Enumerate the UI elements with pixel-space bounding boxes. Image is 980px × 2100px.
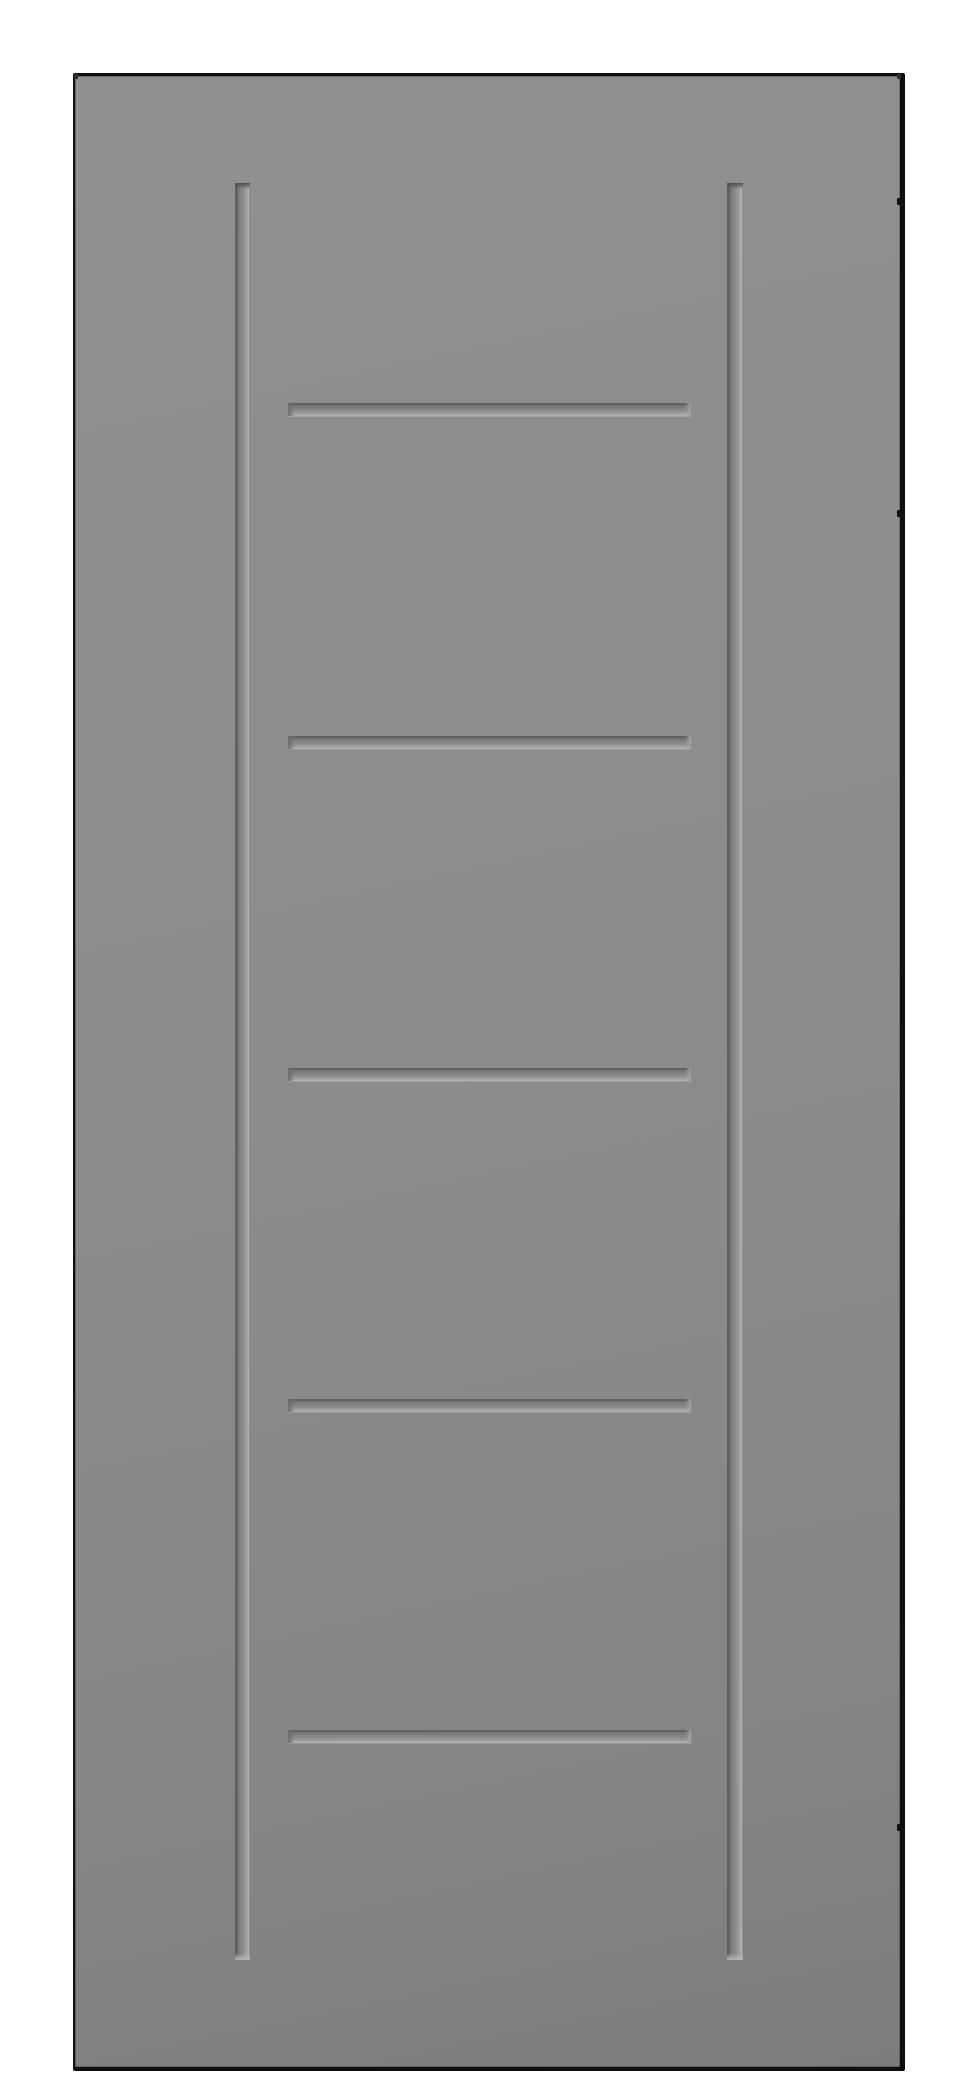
corner-mark xyxy=(74,74,78,79)
door-slab xyxy=(73,73,905,2071)
horizontal-groove xyxy=(288,1068,692,1081)
hinge-mark xyxy=(897,198,904,205)
image-background xyxy=(0,0,980,2100)
vertical-groove xyxy=(727,183,743,1960)
horizontal-groove xyxy=(288,1730,692,1743)
corner-mark xyxy=(897,74,901,79)
hinge-mark xyxy=(897,510,904,517)
horizontal-groove xyxy=(288,403,692,416)
horizontal-groove xyxy=(288,1399,692,1412)
hinge-mark xyxy=(897,1824,904,1831)
horizontal-groove xyxy=(288,736,692,749)
vertical-groove xyxy=(235,183,250,1960)
